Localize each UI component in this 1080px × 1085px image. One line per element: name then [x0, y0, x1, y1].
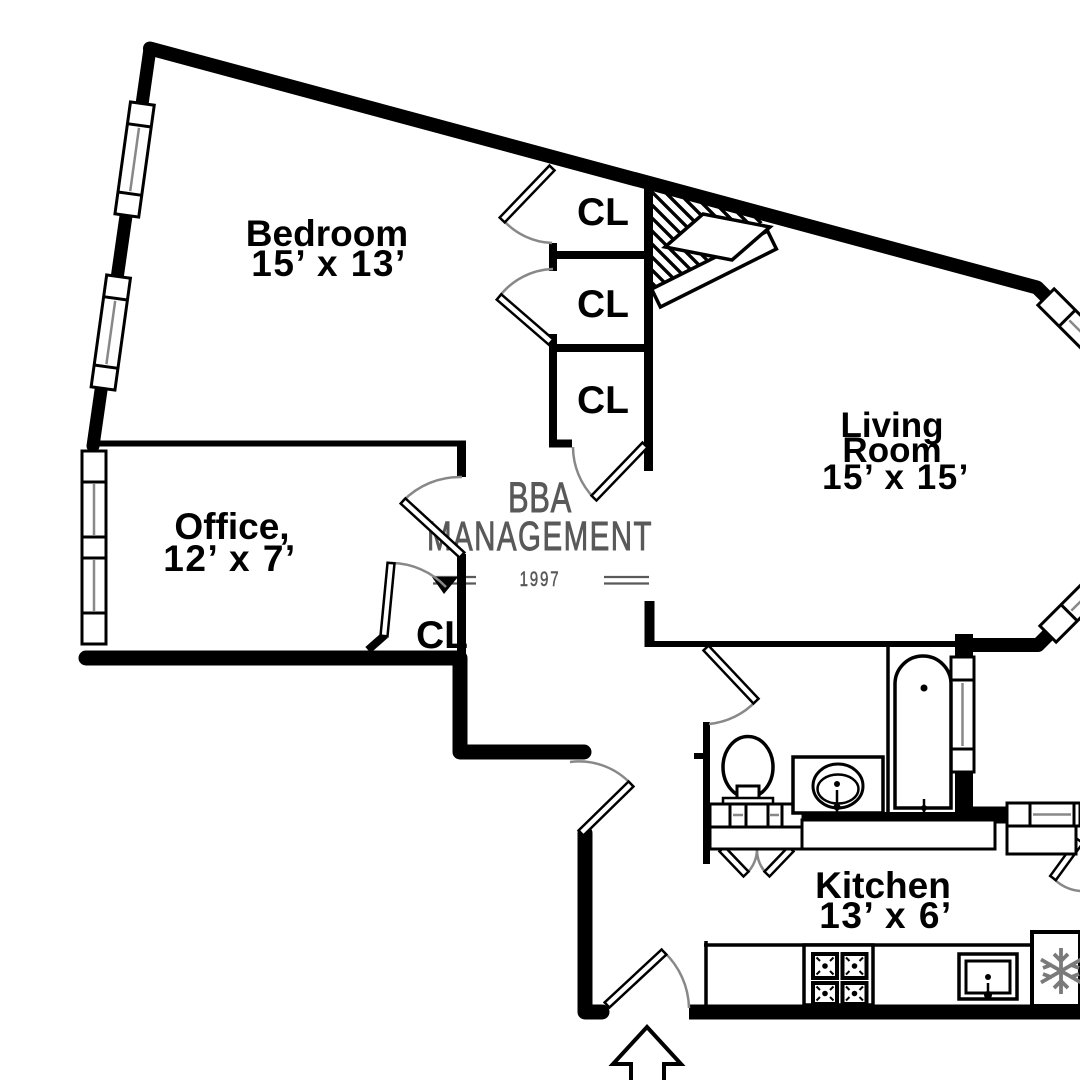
svg-text:1997: 1997 — [520, 566, 561, 590]
svg-text:12’ x 7’: 12’ x 7’ — [163, 538, 296, 579]
svg-text:15’ x 15’: 15’ x 15’ — [822, 458, 970, 497]
svg-text:CL: CL — [577, 191, 629, 234]
svg-text:13’ x 6’: 13’ x 6’ — [819, 895, 952, 936]
svg-text:15’ x 13’: 15’ x 13’ — [251, 243, 406, 284]
svg-text:CL: CL — [577, 283, 629, 326]
svg-text:CL: CL — [577, 379, 629, 422]
svg-text:CL: CL — [416, 614, 468, 657]
